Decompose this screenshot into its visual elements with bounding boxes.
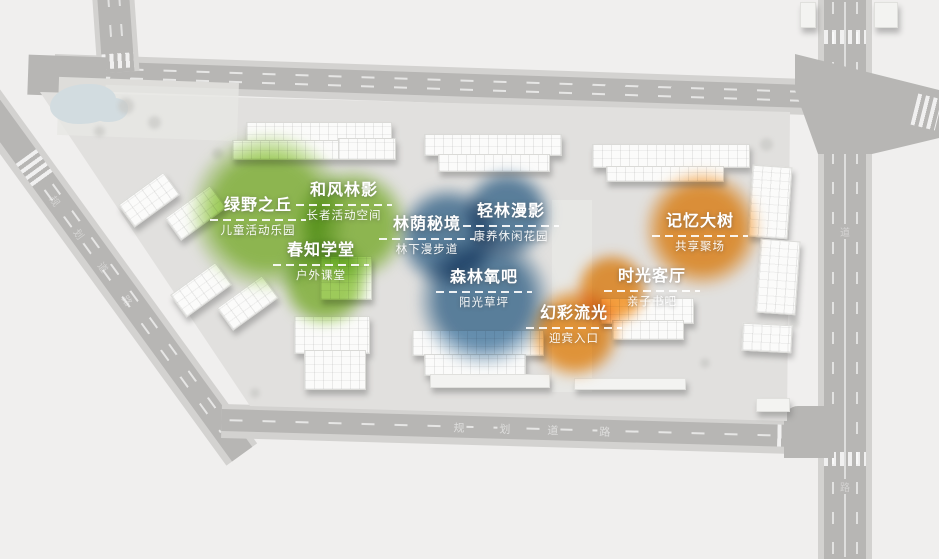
- zone-subtitle: 长者活动空间: [296, 209, 392, 223]
- building: [741, 323, 792, 354]
- dashed-divider: [604, 290, 700, 292]
- dashed-divider: [436, 291, 532, 293]
- dashed-divider: [463, 225, 559, 227]
- zone-label-luye-hill: 绿野之丘 儿童活动乐园: [210, 196, 306, 238]
- zone-subtitle: 儿童活动乐园: [210, 224, 306, 238]
- zone-subtitle: 共享聚场: [652, 240, 748, 254]
- building-strip: [574, 378, 686, 390]
- dashed-divider: [379, 238, 475, 240]
- zone-label-jiyi-tree: 记忆大树 共享聚场: [652, 212, 748, 254]
- building: [592, 144, 750, 168]
- zone-label-hefeng-grove: 和风林影 长者活动空间: [296, 181, 392, 223]
- zone-label-linyin-trail: 林荫秘境 林下漫步道: [379, 215, 475, 257]
- zone-title: 春知学堂: [273, 241, 369, 261]
- building-fragment: [800, 2, 816, 28]
- dashed-divider: [652, 235, 748, 237]
- building: [755, 239, 800, 316]
- zone-title: 森林氧吧: [436, 268, 532, 288]
- zone-title: 林荫秘境: [379, 215, 475, 235]
- dashed-divider: [210, 219, 306, 221]
- zone-title: 和风林影: [296, 181, 392, 201]
- zone-title: 时光客厅: [604, 267, 700, 287]
- zone-title: 幻彩流光: [526, 304, 622, 324]
- building: [304, 350, 366, 390]
- zone-title: 绿野之丘: [210, 196, 306, 216]
- zone-subtitle: 迎宾入口: [526, 332, 622, 346]
- zone-label-senlin-lawn: 森林氧吧 阳光草坪: [436, 268, 532, 310]
- dashed-divider: [526, 327, 622, 329]
- building-fragment: [874, 2, 898, 28]
- zone-subtitle: 户外课堂: [273, 269, 369, 283]
- dashed-divider: [296, 204, 392, 206]
- building-strip: [756, 398, 790, 412]
- zone-subtitle: 康养休闲花园: [463, 230, 559, 244]
- zone-label-shiguang-lounge: 时光客厅 亲子书吧: [604, 267, 700, 309]
- building: [424, 134, 562, 156]
- zone-label-qinglin-garden: 轻林漫影 康养休闲花园: [463, 202, 559, 244]
- dashed-divider: [273, 264, 369, 266]
- zone-title: 记忆大树: [652, 212, 748, 232]
- building-strip: [430, 374, 550, 388]
- zone-label-huancai-entrance: 幻彩流光 迎宾入口: [526, 304, 622, 346]
- zone-title: 轻林漫影: [463, 202, 559, 222]
- zone-label-chunzhi-school: 春知学堂 户外课堂: [273, 241, 369, 283]
- site-plan-canvas: 规 划 道 路 规 划 道 路 道 路: [0, 0, 939, 559]
- zone-subtitle: 阳光草坪: [436, 296, 532, 310]
- building: [338, 138, 396, 160]
- zone-subtitle: 林下漫步道: [379, 243, 475, 257]
